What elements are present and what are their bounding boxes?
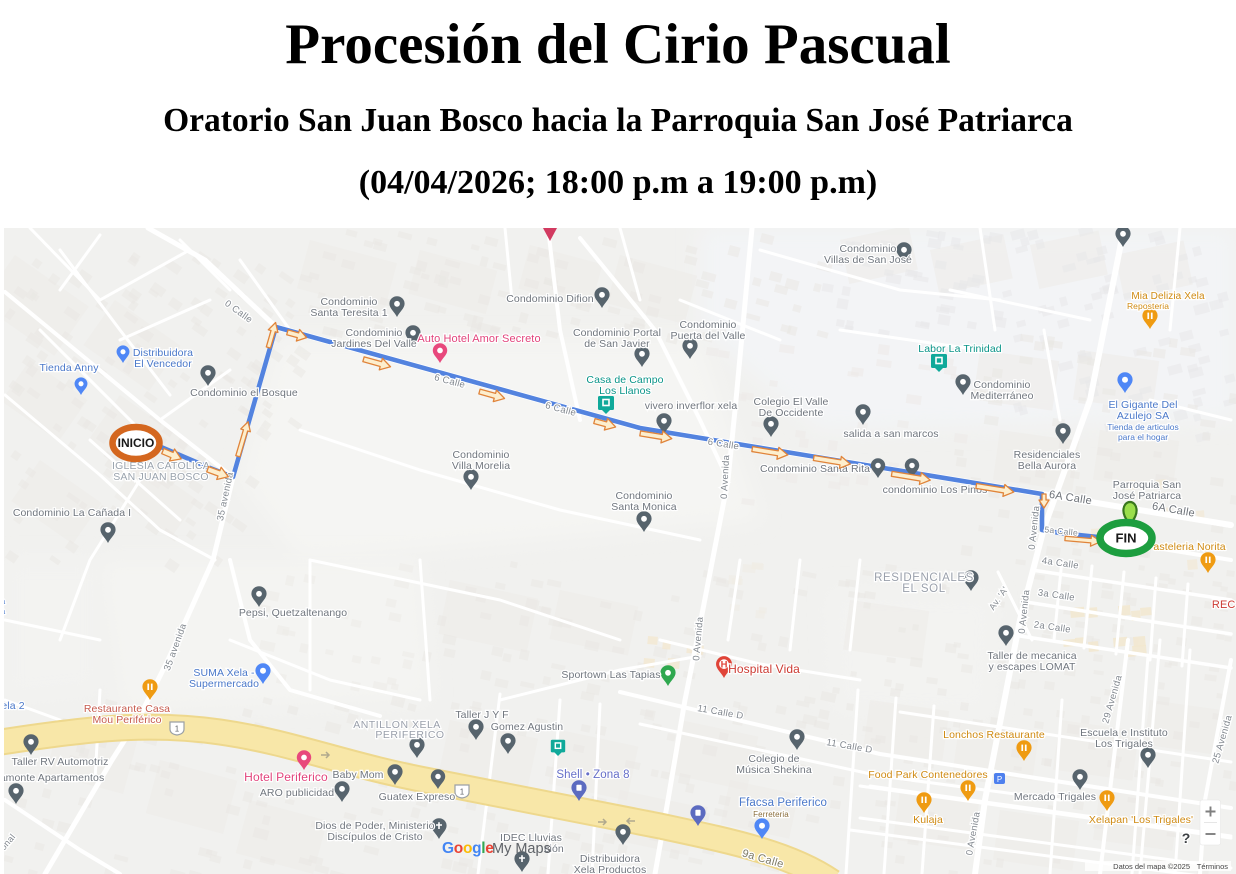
svg-text:Mou Periférico: Mou Periférico (92, 714, 161, 726)
svg-text:Xela Productos: Xela Productos (574, 864, 647, 874)
svg-text:ARO publicidad: ARO publicidad (260, 787, 334, 799)
svg-text:Condominio el Bosque: Condominio el Bosque (190, 387, 298, 399)
svg-text:Tienda Anny: Tienda Anny (39, 362, 99, 374)
svg-text:Ffacsa Periferico: Ffacsa Periferico (739, 797, 827, 809)
svg-text:EL SOL: EL SOL (902, 583, 945, 595)
svg-text:Lonchos Restaurante: Lonchos Restaurante (943, 729, 1045, 741)
svg-text:Auto Hotel Amor Secreto: Auto Hotel Amor Secreto (417, 333, 540, 345)
svg-text:salida a san marcos: salida a san marcos (843, 428, 938, 440)
svg-text:ela 2: ela 2 (4, 700, 25, 712)
svg-text:vivero inverflor xela: vivero inverflor xela (645, 400, 738, 412)
svg-text:Google: Google (442, 840, 494, 857)
svg-text:Tienda de articulos: Tienda de articulos (1107, 422, 1179, 432)
svg-text:Ferreteria: Ferreteria (753, 810, 789, 819)
svg-text:Mediterráneo: Mediterráneo (970, 390, 1033, 402)
svg-text:Datos del mapa ©2025: Datos del mapa ©2025 (1113, 862, 1190, 871)
svg-text:Puerta del Valle: Puerta del Valle (671, 330, 746, 342)
svg-text:Reposteria: Reposteria (1127, 301, 1169, 311)
svg-text:FIN: FIN (1116, 531, 1137, 546)
svg-text:Baby Mom: Baby Mom (333, 769, 384, 781)
svg-text:1: 1 (175, 725, 180, 734)
svg-text:Xelapan 'Los Trigales': Xelapan 'Los Trigales' (1089, 814, 1193, 826)
svg-text:My Maps: My Maps (492, 841, 551, 857)
svg-text:Hospital Vida: Hospital Vida (728, 662, 800, 676)
svg-text:RECO: RECO (1212, 599, 1236, 611)
svg-text:Los Trigales: Los Trigales (1095, 738, 1153, 750)
svg-text:Guatex Expreso: Guatex Expreso (379, 791, 456, 803)
svg-text:Música Shekina: Música Shekina (736, 764, 812, 776)
svg-text:Gomez Agustin: Gomez Agustin (491, 721, 564, 733)
svg-text:De Occidente: De Occidente (759, 407, 824, 419)
svg-text:Pasteleria Norita: Pasteleria Norita (1146, 541, 1225, 553)
svg-text:Hotel Periferico: Hotel Periferico (244, 770, 328, 784)
svg-text:Santa Teresita 1: Santa Teresita 1 (310, 307, 387, 319)
svg-text:condominio Los Pinos: condominio Los Pinos (883, 484, 988, 496)
svg-text:H: H (721, 660, 728, 671)
svg-text:Sportown Las Tapias: Sportown Las Tapias (561, 669, 660, 681)
svg-text:1: 1 (460, 788, 465, 797)
svg-text:PERIFERICO: PERIFERICO (375, 729, 444, 741)
svg-text:y escapes LOMAT: y escapes LOMAT (988, 661, 1076, 673)
svg-text:amonte Apartamentos: amonte Apartamentos (4, 772, 104, 784)
svg-text:El Vencedor: El Vencedor (134, 358, 192, 370)
svg-text:Los Llanos: Los Llanos (599, 385, 651, 397)
svg-text:José Patriarca: José Patriarca (1113, 490, 1182, 502)
svg-text:Condominio La Cañada I: Condominio La Cañada I (13, 507, 131, 519)
svg-text:Santa Monica: Santa Monica (611, 501, 676, 513)
svg-text:Shell • Zona 8: Shell • Zona 8 (556, 769, 629, 781)
svg-text:INICIO: INICIO (118, 436, 155, 450)
svg-text:para el hogar: para el hogar (1118, 432, 1168, 442)
svg-text:Mercado Trigales: Mercado Trigales (1014, 791, 1096, 803)
svg-text:Villas de San José: Villas de San José (824, 254, 912, 266)
svg-text:SAN JUAN BOSCO: SAN JUAN BOSCO (113, 471, 209, 483)
svg-text:Términos: Términos (1197, 862, 1229, 871)
svg-text:Supermercado: Supermercado (189, 678, 259, 690)
svg-text:Kulaja: Kulaja (913, 814, 943, 826)
svg-text:Villa Morelia: Villa Morelia (452, 460, 510, 472)
svg-text:Taller RV Automotriz: Taller RV Automotriz (12, 756, 109, 768)
svg-text:Bella Aurora: Bella Aurora (1018, 460, 1076, 472)
svg-text:Taller J Y F: Taller J Y F (455, 709, 508, 721)
svg-text:Azulejo SA: Azulejo SA (1117, 410, 1169, 422)
svg-text:P: P (997, 775, 1002, 784)
svg-text:?: ? (1182, 830, 1191, 846)
svg-text:Jardines Del Valle: Jardines Del Valle (331, 338, 417, 350)
svg-text:Condominio Difion: Condominio Difion (506, 293, 594, 305)
svg-text:de San Javier: de San Javier (584, 338, 650, 350)
svg-text:Food Park Contenedores: Food Park Contenedores (868, 769, 988, 781)
svg-text:Pepsi, Quetzaltenango: Pepsi, Quetzaltenango (239, 607, 347, 619)
svg-text:0 Avenida: 0 Avenida (719, 454, 732, 499)
svg-text:Labor La Trinidad: Labor La Trinidad (918, 343, 1001, 355)
svg-text:Condominio Santa Rita: Condominio Santa Rita (760, 463, 870, 475)
svg-text:Discípulos de Cristo: Discípulos de Cristo (327, 831, 422, 843)
